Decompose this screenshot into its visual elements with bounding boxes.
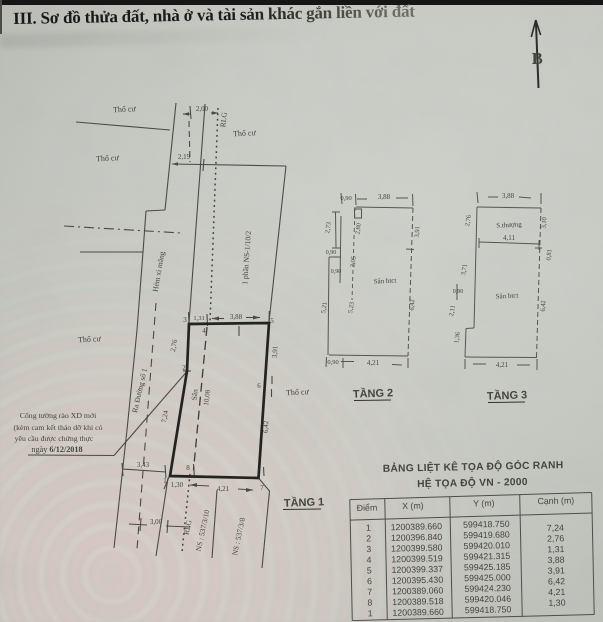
svg-text:B: B: [532, 49, 543, 68]
svg-text:0,90: 0,90: [326, 250, 337, 256]
svg-text:Cạnh (m): Cạnh (m): [537, 495, 574, 506]
svg-text:2,76: 2,76: [169, 338, 179, 352]
svg-text:2,05: 2,05: [349, 256, 358, 268]
svg-text:7,24: 7,24: [160, 409, 170, 423]
svg-text:7: 7: [367, 587, 372, 597]
svg-text:1200389.660: 1200389.660: [391, 521, 443, 532]
svg-text:2,80: 2,80: [354, 223, 363, 235]
svg-text:HỆ TỌA ĐỘ VN - 2000: HỆ TỌA ĐỘ VN - 2000: [417, 475, 528, 490]
svg-text:BẢNG LIỆT KÊ TỌA ĐỘ GÓC RANH: BẢNG LIỆT KÊ TỌA ĐỘ GÓC RANH: [383, 458, 564, 475]
svg-text:1,30: 1,30: [548, 597, 565, 607]
svg-text:NS : 537/3/10: NS : 537/3/10: [194, 509, 212, 552]
svg-text:yêu cầu được chứng thực: yêu cầu được chứng thực: [15, 434, 94, 443]
svg-text:3,88: 3,88: [378, 193, 391, 201]
svg-text:599424.230: 599424.230: [464, 583, 511, 594]
svg-text:0,90: 0,90: [453, 289, 464, 295]
svg-text:2,11: 2,11: [448, 305, 457, 317]
svg-text:5: 5: [367, 565, 372, 575]
svg-text:599418.750: 599418.750: [465, 604, 512, 615]
svg-text:5,21: 5,21: [320, 302, 329, 314]
svg-text:Sân btct: Sân btct: [495, 291, 518, 300]
svg-text:2,19: 2,19: [178, 153, 191, 161]
svg-text:1,36: 1,36: [453, 331, 462, 344]
svg-text:Y (m): Y (m): [473, 498, 495, 508]
svg-text:3,88: 3,88: [230, 313, 243, 321]
svg-text:1200389.518: 1200389.518: [392, 596, 444, 607]
svg-text:1: 1: [163, 477, 167, 485]
svg-text:0,90: 0,90: [331, 269, 342, 275]
svg-text:0,90: 0,90: [340, 195, 351, 202]
svg-text:4: 4: [366, 555, 371, 565]
svg-text:1200396.840: 1200396.840: [391, 532, 443, 543]
svg-text:Sân: Sân: [189, 388, 199, 401]
svg-text:0,90: 0,90: [327, 359, 338, 366]
svg-text:TẦNG 3: TẦNG 3: [487, 388, 528, 402]
svg-text:3,00: 3,00: [150, 518, 163, 526]
svg-text:Thổ cư: Thổ cư: [233, 128, 257, 138]
svg-text:1,31: 1,31: [193, 315, 204, 322]
svg-text:4,21: 4,21: [367, 359, 380, 367]
svg-text:4,11: 4,11: [503, 234, 515, 242]
svg-text:599425.185: 599425.185: [464, 562, 511, 573]
svg-text:5: 5: [270, 317, 274, 325]
svg-text:599425.000: 599425.000: [464, 572, 511, 583]
svg-text:1200399.580: 1200399.580: [391, 543, 443, 554]
svg-text:1200395.430: 1200395.430: [392, 575, 444, 586]
svg-text:NS : 537/3/8: NS : 537/3/8: [230, 517, 247, 557]
svg-text:599418.750: 599418.750: [463, 519, 510, 530]
svg-text:1: 1: [366, 523, 371, 533]
svg-text:ngày 6/12/2018: ngày 6/12/2018: [31, 445, 82, 454]
svg-text:Điểm: Điểm: [357, 503, 378, 513]
svg-text:3,88: 3,88: [502, 192, 515, 200]
svg-text:5,23: 5,23: [347, 302, 356, 314]
svg-text:Thổ cư: Thổ cư: [113, 104, 137, 114]
svg-text:2: 2: [182, 364, 186, 372]
svg-text:Thổ cư: Thổ cư: [78, 334, 102, 344]
svg-text:TẦNG 2: TẦNG 2: [353, 386, 394, 400]
svg-text:3,91: 3,91: [414, 226, 422, 238]
svg-text:RLG: RLG: [218, 111, 229, 128]
svg-text:4,21: 4,21: [496, 361, 509, 369]
svg-text:4,21: 4,21: [548, 587, 565, 597]
svg-text:2: 2: [366, 533, 371, 543]
svg-text:3,91: 3,91: [548, 565, 565, 575]
svg-text:6,42: 6,42: [262, 420, 270, 433]
svg-text:1200389.060: 1200389.060: [392, 585, 444, 596]
svg-text:1,30: 1,30: [171, 481, 184, 489]
svg-text:2,76: 2,76: [464, 214, 473, 227]
svg-text:1 phần NS-1/10/2: 1 phần NS-1/10/2: [240, 230, 253, 285]
svg-text:1: 1: [368, 608, 373, 618]
svg-text:7,24: 7,24: [547, 523, 564, 533]
svg-text:Sân btct: Sân btct: [373, 276, 396, 285]
svg-text:Hẻm xi măng: Hẻm xi măng: [151, 250, 167, 292]
svg-text:3,88: 3,88: [547, 555, 564, 565]
svg-text:1,31: 1,31: [547, 544, 564, 554]
svg-text:7: 7: [260, 484, 264, 492]
svg-text:3: 3: [366, 544, 371, 554]
svg-text:3,91: 3,91: [271, 345, 280, 358]
svg-text:3,10: 3,10: [541, 217, 549, 229]
svg-text:(kèm cam kết tháo dỡ khi có: (kèm cam kết tháo dỡ khi có: [14, 423, 103, 432]
svg-text:6,42: 6,42: [540, 300, 547, 312]
svg-text:Thổ cư: Thổ cư: [286, 387, 310, 397]
svg-text:X (m): X (m): [402, 501, 424, 511]
svg-text:2,00: 2,00: [196, 105, 209, 113]
svg-text:599421.315: 599421.315: [464, 551, 511, 562]
svg-text:599420.046: 599420.046: [465, 594, 512, 605]
svg-text:TẦNG 1: TẦNG 1: [284, 495, 325, 509]
svg-text:1200399.337: 1200399.337: [391, 564, 443, 575]
svg-text:6: 6: [257, 382, 261, 390]
svg-text:8: 8: [367, 598, 372, 608]
svg-text:2,73: 2,73: [324, 222, 333, 234]
svg-text:1200399.519: 1200399.519: [391, 553, 443, 564]
svg-text:3,71: 3,71: [460, 264, 469, 276]
svg-text:3: 3: [183, 316, 187, 324]
svg-text:599419.680: 599419.680: [463, 529, 510, 540]
svg-text:RLG: RLG: [181, 519, 193, 536]
svg-text:6,42: 6,42: [409, 299, 416, 311]
svg-text:Cổng tường rào XD mới: Cổng tường rào XD mới: [20, 411, 97, 420]
svg-text:10,08: 10,08: [202, 389, 212, 406]
svg-text:6: 6: [367, 576, 372, 586]
svg-text:599420.010: 599420.010: [463, 540, 510, 551]
svg-text:1200389.660: 1200389.660: [392, 607, 444, 618]
svg-text:8: 8: [186, 464, 190, 472]
svg-text:4,21: 4,21: [217, 485, 230, 493]
svg-text:6,42: 6,42: [548, 576, 565, 586]
svg-text:2,76: 2,76: [547, 533, 564, 543]
svg-text:4: 4: [202, 327, 206, 335]
svg-text:0,81: 0,81: [546, 249, 554, 261]
svg-text:3,43: 3,43: [137, 461, 150, 469]
svg-text:Thổ cư: Thổ cư: [96, 153, 120, 163]
svg-text:S.thượng: S.thượng: [496, 220, 522, 229]
